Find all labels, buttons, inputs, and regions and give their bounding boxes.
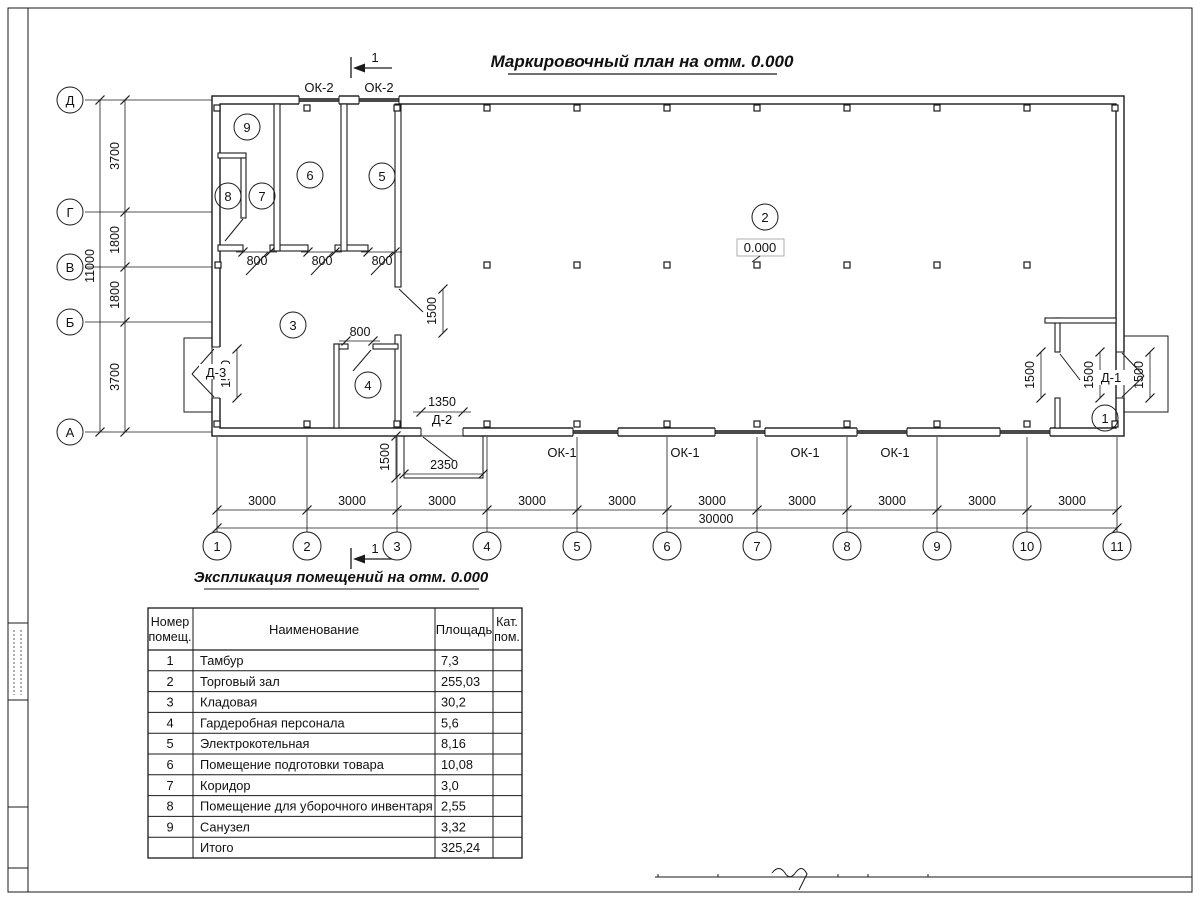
svg-text:9: 9 <box>243 120 250 135</box>
svg-text:3: 3 <box>166 695 173 710</box>
drawing-sheet: Маркировочный план на отм. 0.000 <box>0 0 1200 900</box>
svg-text:7: 7 <box>753 539 760 554</box>
room-marker-8: 8 <box>215 183 241 209</box>
axis-bubble-4: 4 <box>473 532 501 560</box>
elevation-value: 0.000 <box>744 240 777 255</box>
table-row: 5 Электрокотельная 8,16 <box>166 736 465 751</box>
sheet-frame <box>8 8 1192 892</box>
svg-text:5,6: 5,6 <box>441 715 459 730</box>
col-num-line1: Номер <box>151 615 190 629</box>
svg-text:Итого: Итого <box>200 840 234 855</box>
axis-bubble-3: 3 <box>383 532 411 560</box>
dim-h-total: 30000 <box>699 512 734 526</box>
svg-text:1: 1 <box>213 539 220 554</box>
axis-bubble-v: В <box>57 254 83 280</box>
svg-text:6: 6 <box>306 168 313 183</box>
table-row: 9 Санузел 3,32 <box>166 819 465 834</box>
dim-door-800-4: 800 <box>350 325 371 339</box>
side-stamp <box>8 623 28 868</box>
dim-door-800-1: 800 <box>247 254 268 268</box>
window-label-ok1-4: ОК-1 <box>880 445 909 460</box>
room-marker-5: 5 <box>369 163 395 189</box>
window-opening-bottom-3 <box>857 426 907 438</box>
dim-d2-1350: 1350 <box>428 395 456 409</box>
col-cat-line2: пом. <box>494 630 520 644</box>
window-label-ok1-1: ОК-1 <box>547 445 576 460</box>
table-header: Номер помещ. Наименование Площадь Кат. п… <box>148 615 519 644</box>
dim-h-10: 3000 <box>1058 494 1086 508</box>
svg-text:325,24: 325,24 <box>441 840 480 855</box>
door-label-d3: Д-3 <box>206 365 226 380</box>
dim-hall-door-1500: 1500 <box>425 297 439 325</box>
svg-text:4: 4 <box>483 539 490 554</box>
svg-text:2: 2 <box>166 674 173 689</box>
svg-text:1: 1 <box>1101 411 1108 426</box>
axis-bubble-b: Б <box>57 309 83 335</box>
plan-title: Маркировочный план на отм. 0.000 <box>491 52 794 71</box>
svg-text:Тамбур: Тамбур <box>200 653 243 668</box>
window-opening-bottom-2 <box>715 426 765 438</box>
svg-text:8: 8 <box>843 539 850 554</box>
svg-text:Д: Д <box>66 93 75 108</box>
svg-text:Помещение для уборочного инвен: Помещение для уборочного инвентаря <box>200 799 433 814</box>
svg-text:Г: Г <box>66 205 73 220</box>
table-title: Экспликация помещений на отм. 0.000 <box>194 569 489 586</box>
door-label-d1: Д-1 <box>1101 370 1121 385</box>
axis-bubble-6: 6 <box>653 532 681 560</box>
svg-text:10,08: 10,08 <box>441 757 473 772</box>
axis-bubble-1: 1 <box>203 532 231 560</box>
dim-v-total: 11000 <box>83 249 97 283</box>
table-row: 1 Тамбур 7,3 <box>166 653 458 668</box>
plan-title-block: Маркировочный план на отм. 0.000 <box>491 52 794 74</box>
window-label-ok1-2: ОК-1 <box>670 445 699 460</box>
svg-text:1: 1 <box>166 653 173 668</box>
axis-bubble-d: Д <box>57 87 83 113</box>
svg-text:Б: Б <box>66 315 75 330</box>
dim-h-7: 3000 <box>788 494 816 508</box>
dim-h-8: 3000 <box>878 494 906 508</box>
col-cat-line1: Кат. <box>496 615 518 629</box>
svg-text:9: 9 <box>933 539 940 554</box>
svg-text:3,0: 3,0 <box>441 778 459 793</box>
dim-h-2: 3000 <box>338 494 366 508</box>
table-row: 4 Гардеробная персонала 5,6 <box>166 715 458 730</box>
room-marker-3: 3 <box>280 312 306 338</box>
signature-scribble <box>772 868 807 890</box>
svg-text:8: 8 <box>166 799 173 814</box>
axis-bubble-5: 5 <box>563 532 591 560</box>
col-area: Площадь <box>436 622 493 637</box>
axis-bubble-2: 2 <box>293 532 321 560</box>
svg-text:30,2: 30,2 <box>441 695 466 710</box>
table-row: 7 Коридор 3,0 <box>166 778 458 793</box>
svg-text:6: 6 <box>166 757 173 772</box>
axis-bubble-7: 7 <box>743 532 771 560</box>
svg-text:7: 7 <box>258 189 265 204</box>
table-row: 6 Помещение подготовки товара 10,08 <box>166 757 473 772</box>
dim-h-1: 3000 <box>248 494 276 508</box>
plan-labels: ОК-2 ОК-2 ОК-1 ОК-1 ОК-1 ОК-1 9 8 7 6 5 … <box>215 50 1118 569</box>
window-label-ok2-1: ОК-2 <box>304 80 333 95</box>
axis-bubble-g: Г <box>57 199 83 225</box>
svg-text:5: 5 <box>573 539 580 554</box>
table-row: 3 Кладовая 30,2 <box>166 695 465 710</box>
room-marker-6: 6 <box>297 162 323 188</box>
svg-text:2: 2 <box>761 210 768 225</box>
dim-h-3: 3000 <box>428 494 456 508</box>
dim-h-9: 3000 <box>968 494 996 508</box>
window-label-ok1-3: ОК-1 <box>790 445 819 460</box>
room-marker-9: 9 <box>234 114 260 140</box>
col-name: Наименование <box>269 622 359 637</box>
columns <box>214 105 1118 427</box>
svg-text:4: 4 <box>364 378 371 393</box>
window-opening-top-1 <box>299 94 339 106</box>
window-opening-bottom-1 <box>573 426 618 438</box>
svg-text:В: В <box>66 260 75 275</box>
svg-text:4: 4 <box>166 715 173 730</box>
dim-d2-1500: 1500 <box>378 443 392 471</box>
dim-door-800-2: 800 <box>312 254 333 268</box>
room-marker-2: 2 <box>752 204 778 230</box>
axis-bubble-10: 10 <box>1013 532 1041 560</box>
dim-d2-2350: 2350 <box>430 458 458 472</box>
window-label-ok2-2: ОК-2 <box>364 80 393 95</box>
svg-text:Торговый зал: Торговый зал <box>200 674 280 689</box>
bottom-axis-dimensions: 3000 3000 3000 3000 3000 3000 3000 3000 … <box>203 437 1131 560</box>
window-opening-top-2 <box>359 94 399 106</box>
room-marker-7: 7 <box>249 183 275 209</box>
axis-bubble-11: 11 <box>1103 532 1131 560</box>
left-axis-dimensions: 3700 1800 1800 3700 11000 Д Г В Б А <box>57 87 212 445</box>
svg-text:5: 5 <box>166 736 173 751</box>
svg-text:Кладовая: Кладовая <box>200 695 257 710</box>
dim-v-1: 3700 <box>108 142 122 170</box>
title-block-top-line <box>655 868 1192 890</box>
window-opening-bottom-4 <box>1000 426 1050 438</box>
svg-text:А: А <box>66 425 75 440</box>
elevation-mark: 0.000 <box>737 239 784 262</box>
svg-text:11: 11 <box>1110 539 1124 554</box>
svg-text:2,55: 2,55 <box>441 799 466 814</box>
dim-porch-1500: 1500 <box>1132 361 1146 389</box>
svg-text:2: 2 <box>303 539 310 554</box>
svg-text:Электрокотельная: Электрокотельная <box>200 736 309 751</box>
svg-text:3,32: 3,32 <box>441 819 466 834</box>
dim-door-800-3: 800 <box>372 254 393 268</box>
dim-h-5: 3000 <box>608 494 636 508</box>
section-number: 1 <box>371 50 378 65</box>
col-num-line2: помещ. <box>148 630 191 644</box>
section-number: 1 <box>371 541 378 556</box>
table-row: 2 Торговый зал 255,03 <box>166 674 480 689</box>
svg-text:Гардеробная персонала: Гардеробная персонала <box>200 715 345 730</box>
axis-bubble-a: А <box>57 419 83 445</box>
dim-v-4: 3700 <box>108 363 122 391</box>
dim-h-4: 3000 <box>518 494 546 508</box>
dim-vestibule-1500-a: 1500 <box>1023 361 1037 389</box>
svg-text:Помещение подготовки товара: Помещение подготовки товара <box>200 757 385 772</box>
door-label-d2: Д-2 <box>432 412 452 427</box>
axis-bubble-8: 8 <box>833 532 861 560</box>
svg-text:255,03: 255,03 <box>441 674 480 689</box>
room-schedule: Экспликация помещений на отм. 0.000 Номе… <box>148 569 522 858</box>
dim-h-6: 3000 <box>698 494 726 508</box>
svg-text:8,16: 8,16 <box>441 736 466 751</box>
svg-text:6: 6 <box>663 539 670 554</box>
svg-text:3: 3 <box>289 318 296 333</box>
floor-plan <box>184 94 1168 478</box>
dim-v-3: 1800 <box>108 281 122 309</box>
table-total-row: Итого 325,24 <box>200 840 480 855</box>
svg-text:7,3: 7,3 <box>441 653 459 668</box>
table-row: 8 Помещение для уборочного инвентаря 2,5… <box>166 799 465 814</box>
svg-text:5: 5 <box>378 169 385 184</box>
svg-text:Коридор: Коридор <box>200 778 251 793</box>
svg-text:Санузел: Санузел <box>200 819 250 834</box>
axis-bubble-9: 9 <box>923 532 951 560</box>
room-marker-1: 1 <box>1092 405 1118 431</box>
svg-text:8: 8 <box>224 189 231 204</box>
svg-text:3: 3 <box>393 539 400 554</box>
room-marker-4: 4 <box>355 372 381 398</box>
dim-v-2: 1800 <box>108 226 122 254</box>
section-mark-top: 1 <box>351 50 392 78</box>
svg-text:10: 10 <box>1020 539 1034 554</box>
svg-text:7: 7 <box>166 778 173 793</box>
porch-right <box>1124 336 1168 412</box>
svg-text:9: 9 <box>166 819 173 834</box>
